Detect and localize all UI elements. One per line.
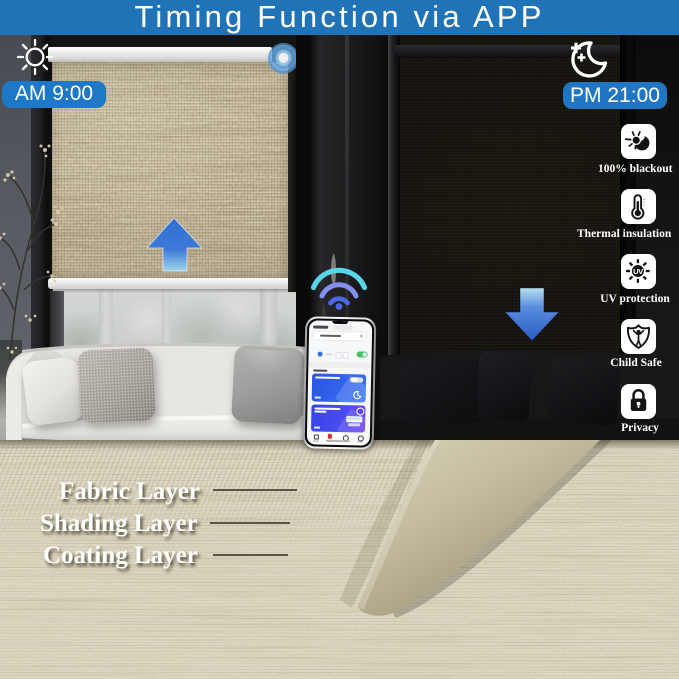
svg-text:UV: UV bbox=[633, 267, 644, 276]
